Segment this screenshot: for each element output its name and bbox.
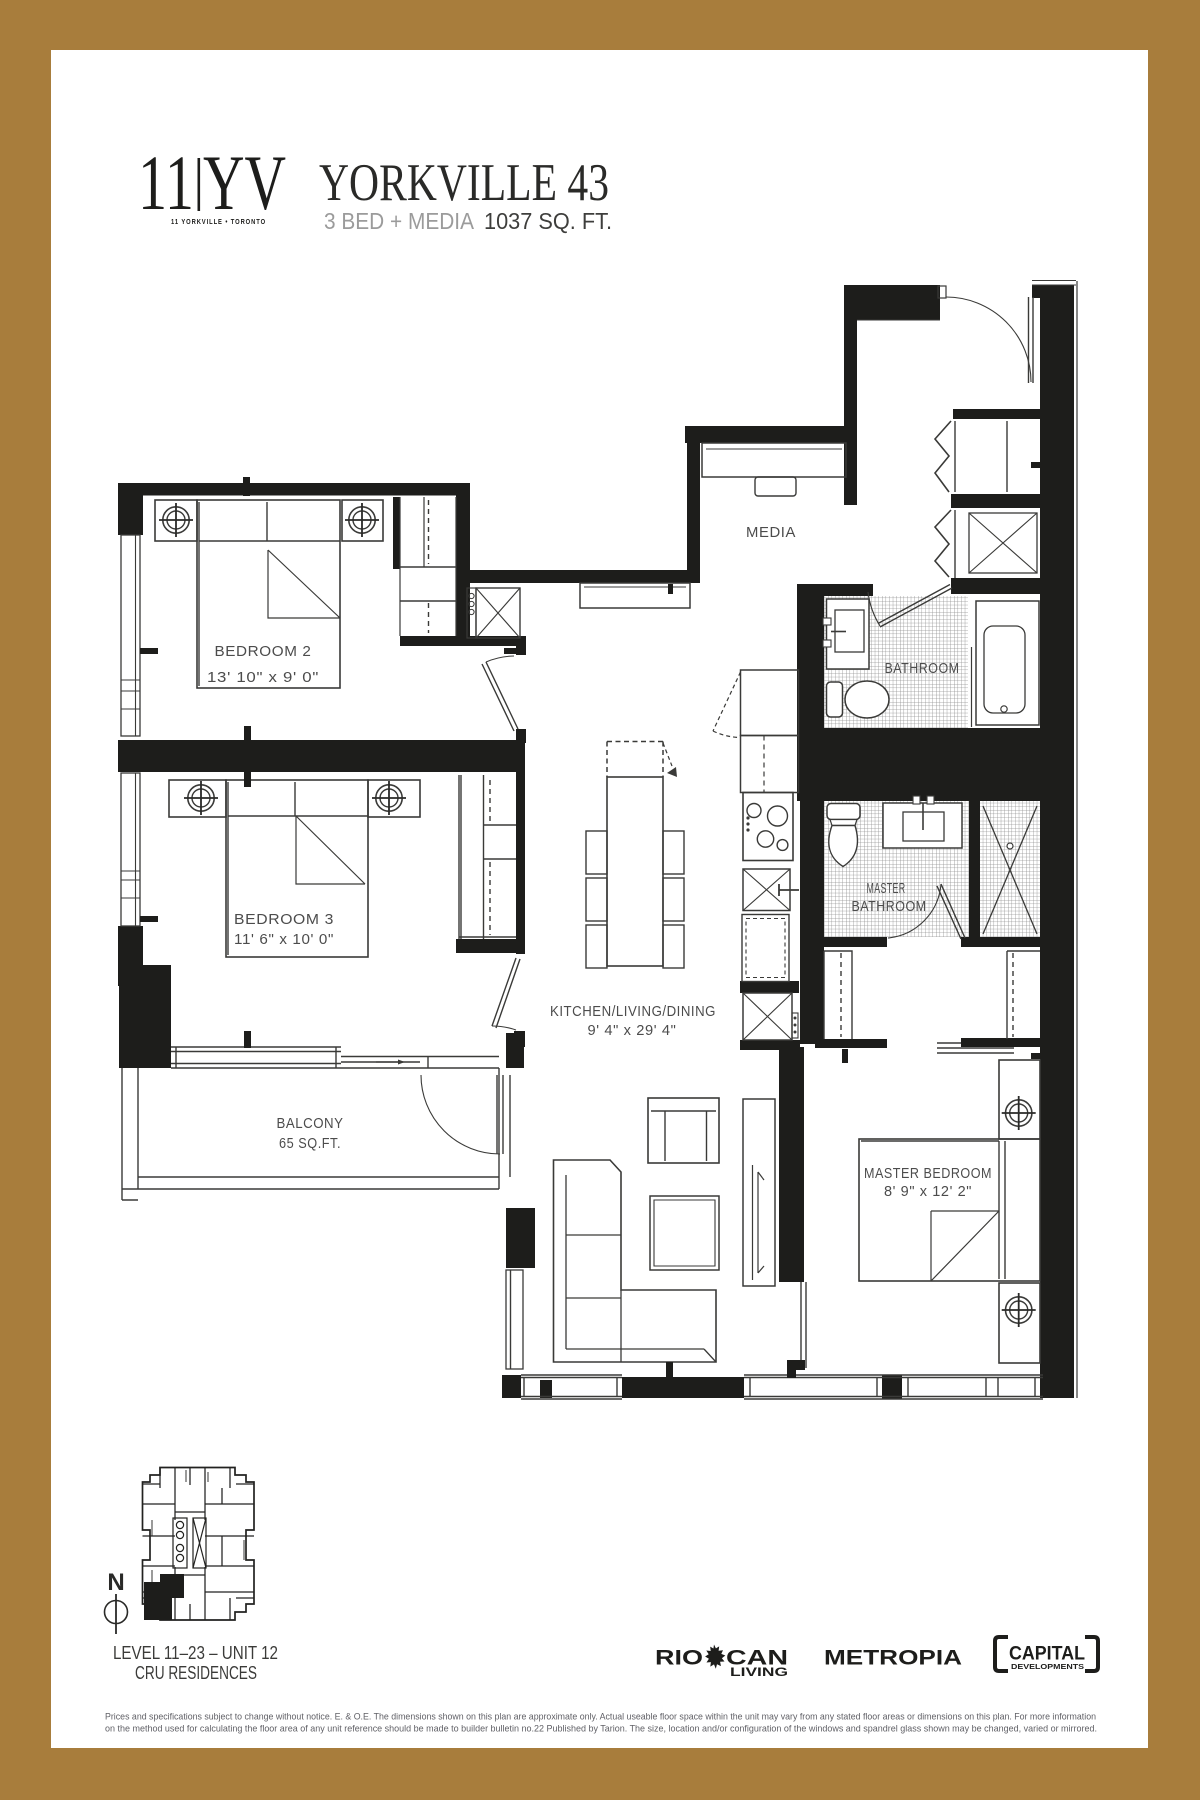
svg-text:11: 11 [138, 139, 194, 226]
svg-text:13' 10" x 9' 0": 13' 10" x 9' 0" [207, 670, 319, 686]
svg-text:YORKVILLE 43: YORKVILLE 43 [319, 154, 609, 212]
svg-text:65 SQ.FT.: 65 SQ.FT. [279, 1136, 341, 1152]
svg-text:CRU RESIDENCES: CRU RESIDENCES [135, 1662, 257, 1683]
svg-text:YV: YV [203, 139, 286, 226]
svg-text:LEVEL 11–23 – UNIT 12: LEVEL 11–23 – UNIT 12 [113, 1642, 278, 1663]
svg-text:CAPITAL: CAPITAL [1009, 1644, 1085, 1665]
svg-text:Prices and specifications subj: Prices and specifications subject to cha… [105, 1712, 1096, 1723]
svg-text:8' 9" x 12' 2": 8' 9" x 12' 2" [884, 1184, 972, 1200]
svg-text:MASTER: MASTER [867, 880, 906, 897]
svg-text:11' 6" x 10' 0": 11' 6" x 10' 0" [234, 932, 334, 948]
svg-text:METROPIA: METROPIA [824, 1646, 962, 1670]
svg-text:on the method used for calcula: on the method used for calculating the f… [105, 1724, 1097, 1735]
svg-text:DEVELOPMENTS: DEVELOPMENTS [1011, 1664, 1084, 1671]
svg-text:N: N [107, 1569, 124, 1596]
svg-text:BEDROOM 2: BEDROOM 2 [215, 643, 312, 660]
svg-text:BATHROOM: BATHROOM [852, 898, 927, 915]
svg-text:MASTER BEDROOM: MASTER BEDROOM [864, 1165, 992, 1182]
svg-text:BATHROOM: BATHROOM [885, 660, 960, 677]
svg-text:11 YORKVILLE • TORONTO: 11 YORKVILLE • TORONTO [171, 217, 266, 226]
svg-text:BEDROOM 3: BEDROOM 3 [234, 911, 334, 928]
svg-text:1037 SQ. FT.: 1037 SQ. FT. [484, 208, 612, 234]
svg-text:BALCONY: BALCONY [277, 1115, 344, 1132]
svg-text:9' 4" x 29' 4": 9' 4" x 29' 4" [588, 1023, 677, 1039]
svg-text:MEDIA: MEDIA [746, 524, 796, 541]
svg-text:KITCHEN/LIVING/DINING: KITCHEN/LIVING/DINING [550, 1003, 716, 1020]
svg-text:LIVING: LIVING [730, 1665, 788, 1679]
svg-text:3 BED + MEDIA: 3 BED + MEDIA [324, 208, 474, 234]
svg-text:RIO: RIO [655, 1647, 703, 1670]
